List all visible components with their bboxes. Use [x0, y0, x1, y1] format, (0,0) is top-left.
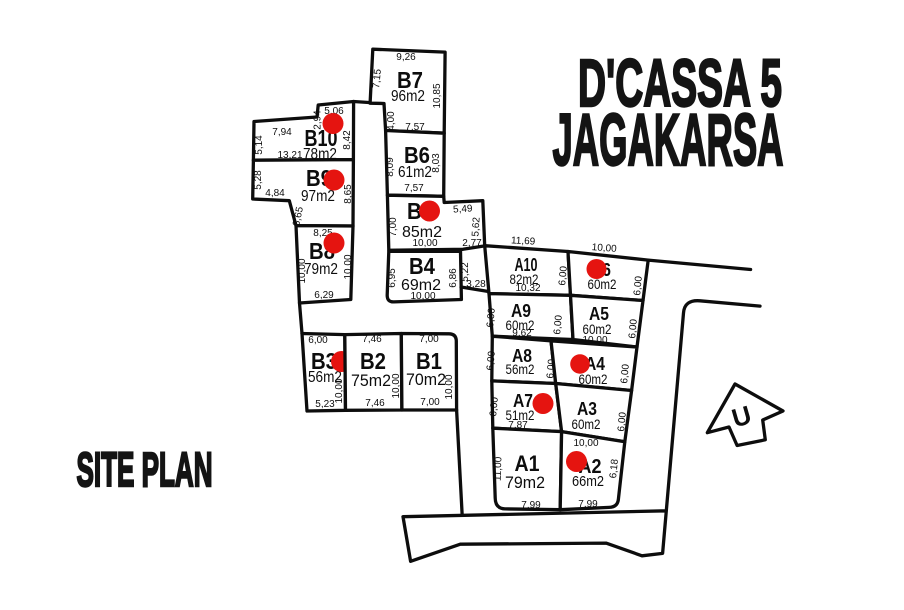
svg-text:11,69: 11,69: [511, 235, 536, 247]
svg-text:60m2: 60m2: [572, 416, 601, 432]
svg-text:5,23: 5,23: [315, 399, 335, 410]
svg-text:2,77: 2,77: [462, 238, 482, 249]
svg-text:61m2: 61m2: [398, 164, 432, 181]
svg-text:7,00: 7,00: [419, 334, 439, 345]
svg-text:6,00: 6,00: [616, 411, 629, 432]
svg-text:6,18: 6,18: [608, 458, 621, 479]
svg-text:2,94: 2,94: [313, 110, 324, 130]
svg-text:79m2: 79m2: [304, 261, 338, 278]
svg-text:75m2: 75m2: [351, 371, 391, 390]
svg-text:6,00: 6,00: [485, 350, 498, 371]
svg-text:7,99: 7,99: [578, 499, 598, 510]
svg-text:10,85: 10,85: [432, 83, 443, 108]
svg-text:7,99: 7,99: [521, 500, 541, 511]
svg-text:6,00: 6,00: [619, 363, 632, 384]
svg-text:7,57: 7,57: [404, 183, 424, 194]
svg-text:8,42: 8,42: [342, 130, 353, 150]
svg-text:6,95: 6,95: [387, 268, 398, 288]
svg-text:11,00: 11,00: [493, 456, 505, 481]
svg-text:5,28: 5,28: [253, 170, 264, 190]
svg-text:70m2: 70m2: [406, 370, 446, 389]
svg-text:96m2: 96m2: [391, 88, 425, 105]
svg-text:6,00: 6,00: [308, 335, 328, 346]
svg-text:10,00: 10,00: [444, 374, 455, 399]
svg-text:7,46: 7,46: [362, 334, 382, 345]
svg-text:6,00: 6,00: [488, 396, 501, 417]
svg-text:97m2: 97m2: [301, 188, 335, 205]
svg-text:7,00: 7,00: [420, 397, 440, 408]
svg-text:56m2: 56m2: [506, 361, 535, 377]
svg-text:9,26: 9,26: [396, 52, 416, 63]
svg-text:6,86: 6,86: [448, 268, 459, 288]
svg-text:10,00: 10,00: [334, 378, 345, 403]
svg-text:5,49: 5,49: [453, 203, 474, 215]
svg-text:B4: B4: [409, 253, 435, 279]
svg-text:6,00: 6,00: [552, 314, 565, 335]
svg-text:6,00: 6,00: [627, 318, 640, 339]
svg-text:6,00: 6,00: [632, 275, 645, 296]
svg-text:10,00: 10,00: [591, 242, 617, 255]
svg-text:7,15: 7,15: [371, 68, 384, 89]
svg-text:5,62: 5,62: [470, 216, 482, 237]
svg-text:7,46: 7,46: [365, 398, 385, 409]
svg-text:JAGAKARSA: JAGAKARSA: [553, 100, 784, 181]
svg-text:10,32: 10,32: [515, 283, 540, 294]
svg-text:4,84: 4,84: [265, 188, 285, 199]
svg-text:10,00: 10,00: [412, 238, 437, 249]
svg-text:SITE PLAN: SITE PLAN: [77, 444, 213, 497]
svg-text:8,65: 8,65: [343, 184, 354, 204]
svg-text:10,00: 10,00: [297, 258, 308, 283]
svg-text:4,00: 4,00: [386, 111, 397, 131]
svg-text:7,94: 7,94: [272, 127, 292, 138]
svg-text:6,00: 6,00: [485, 307, 498, 328]
svg-text:79m2: 79m2: [505, 473, 545, 492]
svg-text:8,03: 8,03: [431, 153, 442, 173]
svg-text:66m2: 66m2: [572, 473, 604, 490]
svg-text:60m2: 60m2: [588, 276, 617, 292]
svg-text:10,00: 10,00: [573, 438, 598, 449]
svg-text:10,00: 10,00: [410, 291, 435, 302]
svg-text:6,29: 6,29: [314, 290, 334, 301]
svg-text:8,09: 8,09: [385, 157, 396, 177]
svg-text:5,14: 5,14: [254, 135, 265, 155]
svg-text:10,00: 10,00: [343, 254, 354, 279]
svg-text:7,00: 7,00: [388, 217, 399, 237]
